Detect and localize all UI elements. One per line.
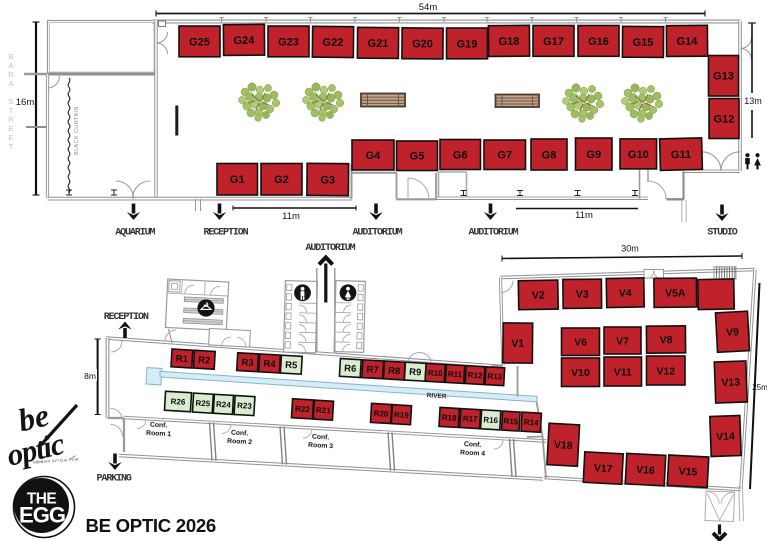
svg-text:V4: V4 xyxy=(619,287,632,299)
svg-text:Conf.: Conf. xyxy=(464,441,482,449)
svg-text:Conf.: Conf. xyxy=(231,430,249,438)
svg-text:25m: 25m xyxy=(752,383,767,392)
svg-text:E: E xyxy=(8,124,13,133)
svg-text:G24: G24 xyxy=(234,35,256,47)
svg-text:G19: G19 xyxy=(457,38,478,50)
svg-text:AQUARIUM: AQUARIUM xyxy=(115,228,155,239)
svg-text:BLACK CURTAIN: BLACK CURTAIN xyxy=(74,106,80,155)
svg-text:G25: G25 xyxy=(189,36,210,48)
svg-text:Conf.: Conf. xyxy=(312,434,330,442)
svg-text:R9: R9 xyxy=(409,367,422,379)
svg-text:V14: V14 xyxy=(716,430,735,443)
svg-text:G3: G3 xyxy=(320,174,335,186)
svg-text:E: E xyxy=(8,133,13,142)
svg-text:R25: R25 xyxy=(195,399,211,409)
svg-text:G2: G2 xyxy=(274,174,289,186)
svg-text:G16: G16 xyxy=(588,36,609,48)
svg-text:13m: 13m xyxy=(744,96,762,106)
svg-text:R2: R2 xyxy=(198,355,211,367)
svg-text:R3: R3 xyxy=(241,357,254,369)
svg-text:V10: V10 xyxy=(571,367,590,379)
svg-text:RECEPTION: RECEPTION xyxy=(104,312,149,323)
svg-text:V8: V8 xyxy=(660,334,673,346)
svg-text:R26: R26 xyxy=(170,397,186,407)
svg-text:T: T xyxy=(9,106,14,115)
svg-text:V2: V2 xyxy=(532,290,545,302)
svg-text:Room 1: Room 1 xyxy=(146,430,171,438)
svg-text:G17: G17 xyxy=(543,36,564,48)
svg-text:V11: V11 xyxy=(614,366,632,378)
svg-text:R10: R10 xyxy=(428,368,444,378)
svg-text:V18: V18 xyxy=(554,439,573,452)
svg-text:R8: R8 xyxy=(388,366,401,378)
svg-text:S: S xyxy=(8,97,13,106)
svg-text:R15: R15 xyxy=(503,417,519,427)
svg-text:G10: G10 xyxy=(628,149,649,161)
svg-text:V17: V17 xyxy=(594,462,613,475)
svg-text:16m: 16m xyxy=(16,97,35,108)
svg-text:G4: G4 xyxy=(366,150,382,162)
svg-text:AUDITORIUM: AUDITORIUM xyxy=(352,228,402,239)
svg-text:R5: R5 xyxy=(285,360,298,372)
svg-text:V5A: V5A xyxy=(665,287,686,299)
svg-text:G12: G12 xyxy=(714,113,735,125)
svg-text:R19: R19 xyxy=(394,410,410,420)
svg-text:RECEPTION: RECEPTION xyxy=(203,228,248,239)
svg-text:R17: R17 xyxy=(463,414,479,424)
svg-text:G23: G23 xyxy=(278,36,299,48)
svg-text:V6: V6 xyxy=(574,337,587,349)
svg-text:EGG: EGG xyxy=(19,503,65,528)
svg-text:R20: R20 xyxy=(373,409,389,419)
svg-text:G7: G7 xyxy=(497,150,512,162)
svg-text:G15: G15 xyxy=(633,37,654,49)
svg-text:R24: R24 xyxy=(216,400,232,410)
svg-text:BE OPTIC 2026: BE OPTIC 2026 xyxy=(86,515,216,536)
svg-text:G14: G14 xyxy=(677,36,699,48)
svg-text:G11: G11 xyxy=(671,149,691,162)
svg-text:T: T xyxy=(9,142,14,151)
svg-text:Room 4: Room 4 xyxy=(460,449,485,457)
svg-text:V7: V7 xyxy=(616,335,629,347)
svg-text:Conf.: Conf. xyxy=(150,422,168,430)
svg-text:8m: 8m xyxy=(84,371,96,381)
svg-text:R23: R23 xyxy=(237,401,253,411)
svg-text:R18: R18 xyxy=(442,413,458,423)
svg-text:G5: G5 xyxy=(410,151,425,163)
svg-text:R: R xyxy=(8,70,14,79)
svg-text:30m: 30m xyxy=(621,244,639,254)
svg-text:R14: R14 xyxy=(524,418,540,428)
svg-text:V3: V3 xyxy=(576,289,589,301)
svg-text:G22: G22 xyxy=(323,37,344,49)
svg-text:AUDITORIUM: AUDITORIUM xyxy=(468,228,518,239)
svg-text:V9: V9 xyxy=(726,326,740,339)
svg-text:R6: R6 xyxy=(344,363,357,375)
svg-text:R1: R1 xyxy=(175,354,188,366)
svg-text:STUDIO: STUDIO xyxy=(707,228,738,239)
svg-text:G20: G20 xyxy=(412,38,433,50)
svg-text:V1: V1 xyxy=(511,338,524,350)
svg-text:54m: 54m xyxy=(419,2,438,13)
svg-text:G8: G8 xyxy=(542,149,557,161)
svg-text:B: B xyxy=(8,52,13,61)
svg-text:R12: R12 xyxy=(467,371,483,381)
svg-text:G6: G6 xyxy=(453,149,468,161)
svg-text:Room 3: Room 3 xyxy=(308,442,333,450)
svg-text:G9: G9 xyxy=(586,149,601,161)
svg-text:11m: 11m xyxy=(575,210,593,221)
svg-text:Room 2: Room 2 xyxy=(227,438,252,446)
svg-text:PARKING: PARKING xyxy=(97,474,132,485)
svg-text:V13: V13 xyxy=(721,376,740,389)
svg-text:R7: R7 xyxy=(366,364,379,376)
svg-text:11m: 11m xyxy=(282,211,300,222)
svg-text:R21: R21 xyxy=(316,406,332,416)
svg-text:R22: R22 xyxy=(295,404,311,414)
svg-text:V16: V16 xyxy=(636,464,655,477)
svg-text:A: A xyxy=(8,61,13,70)
svg-text:R16: R16 xyxy=(483,415,499,425)
svg-text:RIVER: RIVER xyxy=(426,392,447,400)
svg-text:G1: G1 xyxy=(230,174,245,186)
svg-text:R13: R13 xyxy=(487,372,503,382)
svg-text:A: A xyxy=(8,79,13,88)
svg-text:G18: G18 xyxy=(499,36,520,48)
svg-text:G13: G13 xyxy=(713,71,734,83)
svg-text:V15: V15 xyxy=(678,466,697,479)
svg-text:G21: G21 xyxy=(368,38,389,50)
svg-text:AUDITORIUM: AUDITORIUM xyxy=(305,243,355,254)
svg-text:V12: V12 xyxy=(656,365,675,377)
svg-text:R: R xyxy=(8,115,14,124)
svg-text:R4: R4 xyxy=(263,359,276,371)
svg-text:R11: R11 xyxy=(448,369,463,379)
